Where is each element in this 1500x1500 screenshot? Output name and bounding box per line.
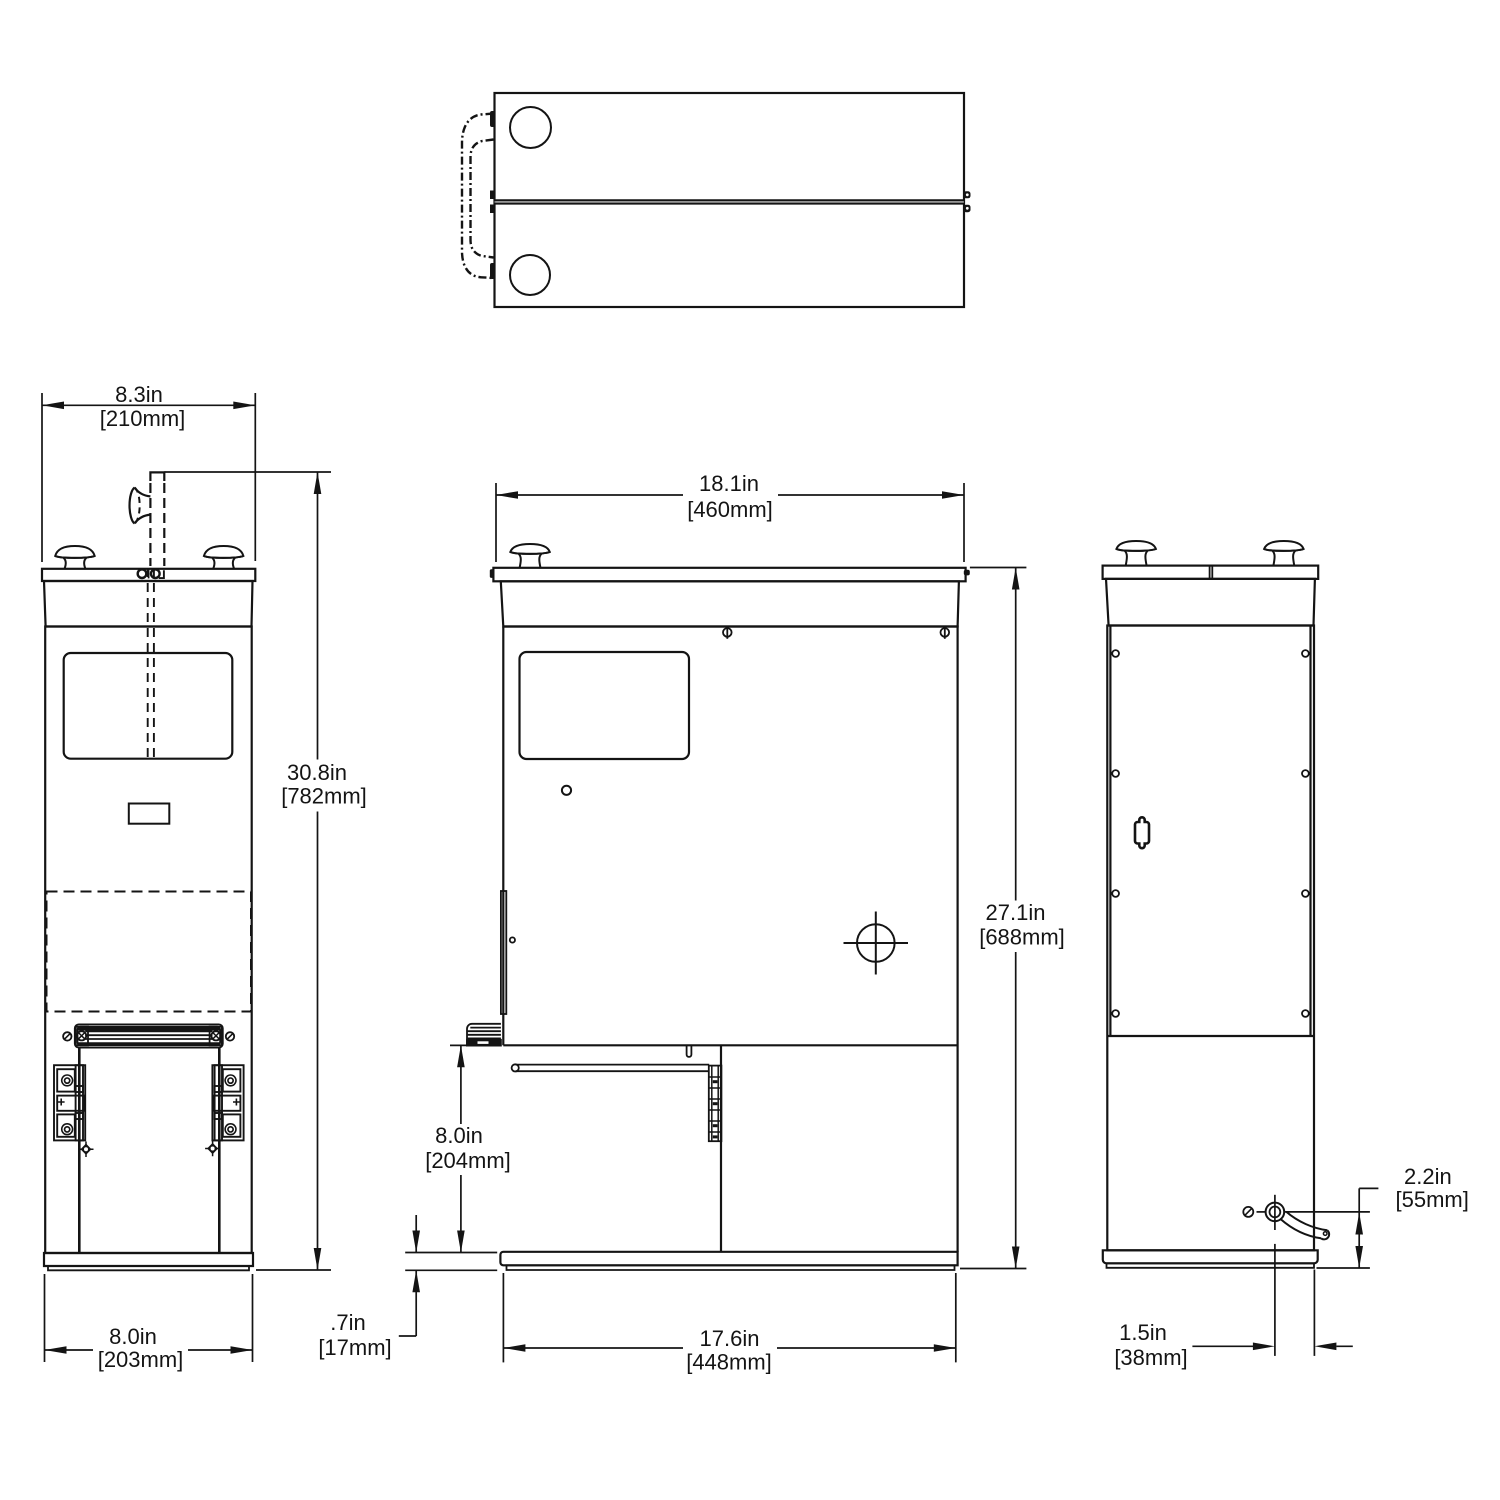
svg-text:27.1in: 27.1in: [986, 900, 1046, 925]
svg-text:30.8in: 30.8in: [287, 760, 347, 785]
svg-text:[782mm]: [782mm]: [281, 784, 367, 809]
svg-text:[204mm]: [204mm]: [425, 1148, 511, 1173]
svg-text:8.0in: 8.0in: [435, 1123, 483, 1148]
svg-text:[210mm]: [210mm]: [100, 406, 186, 431]
svg-text:[688mm]: [688mm]: [979, 925, 1065, 950]
svg-text:8.3in: 8.3in: [115, 382, 163, 407]
svg-text:17.6in: 17.6in: [700, 1326, 760, 1351]
svg-text:18.1in: 18.1in: [699, 471, 759, 496]
svg-text:.7in: .7in: [330, 1310, 365, 1335]
svg-text:[17mm]: [17mm]: [318, 1335, 391, 1360]
svg-text:[38mm]: [38mm]: [1114, 1345, 1187, 1370]
svg-text:1.5in: 1.5in: [1119, 1320, 1167, 1345]
svg-text:8.0in: 8.0in: [109, 1324, 157, 1349]
svg-text:[448mm]: [448mm]: [686, 1350, 772, 1375]
svg-text:[460mm]: [460mm]: [687, 497, 773, 522]
svg-text:[203mm]: [203mm]: [98, 1347, 184, 1372]
svg-text:[55mm]: [55mm]: [1396, 1187, 1469, 1212]
svg-text:2.2in: 2.2in: [1404, 1164, 1452, 1189]
